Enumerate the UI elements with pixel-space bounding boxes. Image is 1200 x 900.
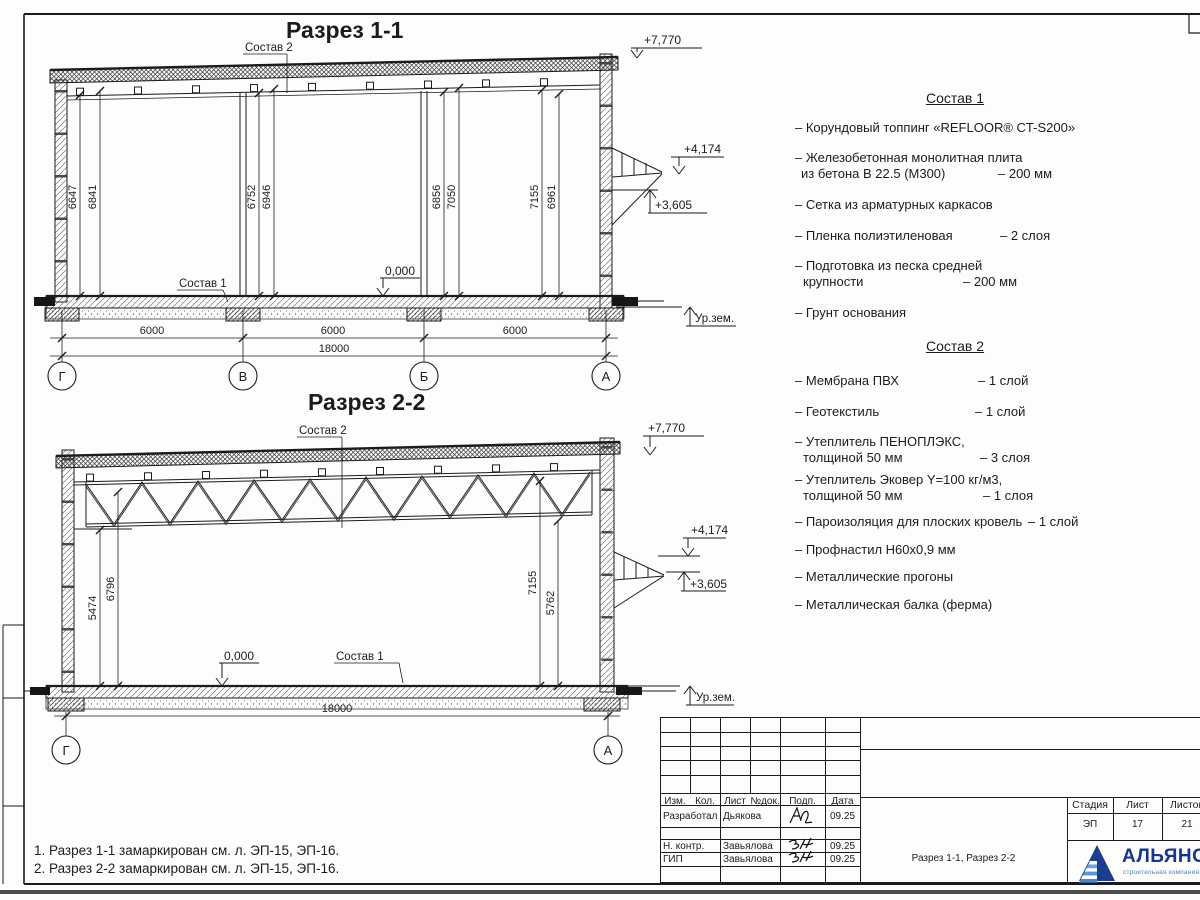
company-logo-name: АЛЬЯНС	[1122, 846, 1200, 868]
sostav1-item-value: – 200 мм	[963, 274, 1017, 289]
sostav2-item-value: – 1 слой	[975, 404, 1025, 419]
tb-name-developer: Дьякова	[723, 811, 761, 822]
tb-col-data: Дата	[825, 796, 860, 807]
dim-5474: 5474	[87, 596, 99, 620]
dim-lines-vertical	[100, 481, 558, 686]
tb-sheets-value: 21	[1162, 819, 1200, 830]
sostav1-item: – Сетка из арматурных каркасов	[795, 197, 993, 212]
dim-6796: 6796	[105, 577, 117, 601]
tb-sheet-value: 17	[1113, 819, 1162, 830]
ground-level-text: Ур.зем.	[696, 692, 735, 704]
elev-zero-text: 0,000	[385, 264, 415, 278]
elev-canopy-bot-text: +3,605	[655, 198, 692, 212]
span-dim-texts: 6000 6000 6000 18000	[140, 325, 527, 355]
sostav2-item-value: – 1 слой	[1028, 514, 1078, 529]
sostav1-item: – Грунт основания	[795, 305, 906, 320]
leaders	[297, 437, 403, 683]
tb-role-developer: Разработал	[663, 811, 717, 822]
dim-5762: 5762	[545, 591, 557, 615]
sostav1-item: из бетона В 22.5 (М300)	[801, 166, 945, 181]
note-2: 2. Разрез 2-2 замаркирован см. л. ЭП-15,…	[34, 861, 339, 876]
sostav1-item-value: – 2 слоя	[1000, 228, 1050, 243]
axis-g: Г	[58, 369, 65, 384]
axis-b: Б	[420, 369, 429, 384]
sostav2-item: – Металлическая балка (ферма)	[795, 597, 992, 612]
sostav2-item-value: – 1 слой	[978, 373, 1028, 388]
zero-level-mark	[216, 663, 259, 686]
dim-7155: 7155	[529, 185, 541, 209]
dim-6841: 6841	[87, 185, 99, 209]
sostav1-item: – Подготовка из песка средней	[795, 258, 982, 273]
section-1-1-drawing: 6647 6841 6752 6946 6856 7050 7155 6961 …	[34, 17, 736, 390]
dim-ticks	[76, 84, 563, 300]
sostav2-heading: Состав 2	[880, 338, 1030, 354]
span-3: 6000	[503, 325, 527, 337]
tb-col-izm: Изм.	[660, 796, 690, 807]
axis-labels: Г А	[62, 743, 612, 758]
tb-col-list: Лист	[720, 796, 750, 807]
ground-level-text: Ур.зем.	[695, 313, 734, 325]
elev-canopy-top-text: +4,174	[691, 523, 728, 537]
sostav1-item: крупности	[803, 274, 863, 289]
tb-role-gip: ГИП	[663, 854, 683, 865]
total-dim: 18000	[322, 703, 353, 715]
sostav1-item-value: – 200 мм	[998, 166, 1052, 181]
axis-g: Г	[62, 743, 69, 758]
total-dim: 18000	[319, 343, 350, 355]
elev-canopy-bot-text: +3,605	[690, 577, 727, 591]
span-1: 6000	[140, 325, 164, 337]
elevation-marks	[612, 48, 736, 326]
dim-6946: 6946	[261, 185, 273, 209]
tb-doc-title: Разрез 1-1, Разрез 2-2	[860, 853, 1067, 864]
sostav2-item: – Профнастил Н60х0,9 мм	[795, 542, 956, 557]
sostav2-leader-label: Состав 2	[299, 425, 347, 437]
elev-roof-text: +7,770	[648, 421, 685, 435]
tb-name-gip: Завьялова	[723, 854, 773, 865]
sostav2-leader-label: Состав 2	[245, 42, 293, 54]
tb-col-kol: Кол.	[690, 796, 720, 807]
axis-bubbles	[48, 362, 620, 390]
axis-a: А	[602, 369, 611, 384]
dim-7155: 7155	[527, 571, 539, 595]
sostav2-item: толщиной 50 мм	[803, 488, 903, 503]
dim-6752: 6752	[246, 185, 258, 209]
signature-gip	[786, 850, 822, 866]
span-2: 6000	[321, 325, 345, 337]
title-block: Изм. Кол. Лист №док. Подп. Дата Разработ…	[660, 717, 1200, 884]
tb-role-ncontrol: Н. контр.	[663, 841, 704, 852]
dim-6856: 6856	[431, 185, 443, 209]
sostav1-item: – Железобетонная монолитная плита	[795, 150, 1023, 165]
tb-sheets-header: Листов	[1162, 799, 1200, 811]
sostav1-heading: Состав 1	[880, 90, 1030, 106]
dim-texts: 6647 6841 6752 6946 6856 7050 7155 6961	[67, 185, 558, 209]
sostav1-leader-label: Состав 1	[336, 651, 384, 663]
sostav1-leader-label: Состав 1	[179, 278, 227, 290]
dim-6647: 6647	[67, 185, 79, 209]
dim-lines-vertical	[80, 88, 559, 296]
tb-stage-value: ЭП	[1067, 819, 1113, 830]
sostav1-item: – Корундовый топпинг «REFLOOR® CT-S200»	[795, 120, 1075, 135]
dim-chain	[54, 712, 620, 736]
section-2-2-title: Разрез 2-2	[308, 389, 425, 415]
axis-labels: Г В Б А	[58, 369, 610, 384]
truss	[74, 470, 600, 529]
tb-name-ncontrol: Завьялова	[723, 841, 773, 852]
elev-roof-text: +7,770	[644, 33, 681, 47]
dim-6961: 6961	[546, 185, 558, 209]
canopy	[614, 552, 664, 608]
tb-col-ndok: №док.	[750, 796, 780, 807]
company-logo-icon	[1076, 843, 1120, 883]
sostav2-item: – Утеплитель Эковер Y=100 кг/м3,	[795, 472, 1002, 487]
sostav2-item: – Мембрана ПВХ	[795, 373, 899, 388]
section-2-2-drawing: 5474 6796 7155 5762 0,000 Состав 2 Соста…	[24, 389, 735, 764]
axis-v: В	[239, 369, 248, 384]
sostav2-item: – Утеплитель ПЕНОПЛЭКС,	[795, 434, 965, 449]
tb-date-ncontrol: 09.25	[825, 841, 860, 852]
sostav1-item: – Пленка полиэтиленовая	[795, 228, 953, 243]
zero-level-mark	[377, 278, 420, 296]
sostav2-item: – Пароизоляция для плоских кровель	[795, 514, 1022, 529]
elev-zero-text: 0,000	[224, 649, 254, 663]
note-1: 1. Разрез 1-1 замаркирован см. л. ЭП-15,…	[34, 843, 339, 858]
signature-developer	[786, 805, 822, 827]
elev-canopy-top-text: +4,174	[684, 142, 721, 156]
sostav2-item: толщиной 50 мм	[803, 450, 903, 465]
elevation-marks	[620, 436, 734, 705]
dim-texts: 5474 6796 7155 5762	[87, 571, 557, 620]
tb-sheet-header: Лист	[1113, 799, 1162, 811]
drawing-sheet: 6647 6841 6752 6946 6856 7050 7155 6961 …	[0, 0, 1200, 900]
section-1-1-title: Разрез 1-1	[286, 17, 404, 43]
sostav2-item-value: – 3 слоя	[980, 450, 1030, 465]
tb-stage-header: Стадия	[1067, 799, 1113, 811]
sostav2-item-value: – 1 слоя	[983, 488, 1033, 503]
sostav2-item: – Геотекстиль	[795, 404, 879, 419]
axis-bubbles	[52, 736, 622, 764]
dim-7050: 7050	[446, 185, 458, 209]
company-logo-subtitle: строительная компания	[1123, 869, 1199, 876]
tb-date-developer: 09.25	[825, 811, 860, 822]
axis-a: А	[604, 743, 613, 758]
sheet-edge	[0, 890, 1200, 894]
tb-date-gip: 09.25	[825, 854, 860, 865]
sostav2-item: – Металлические прогоны	[795, 569, 953, 584]
